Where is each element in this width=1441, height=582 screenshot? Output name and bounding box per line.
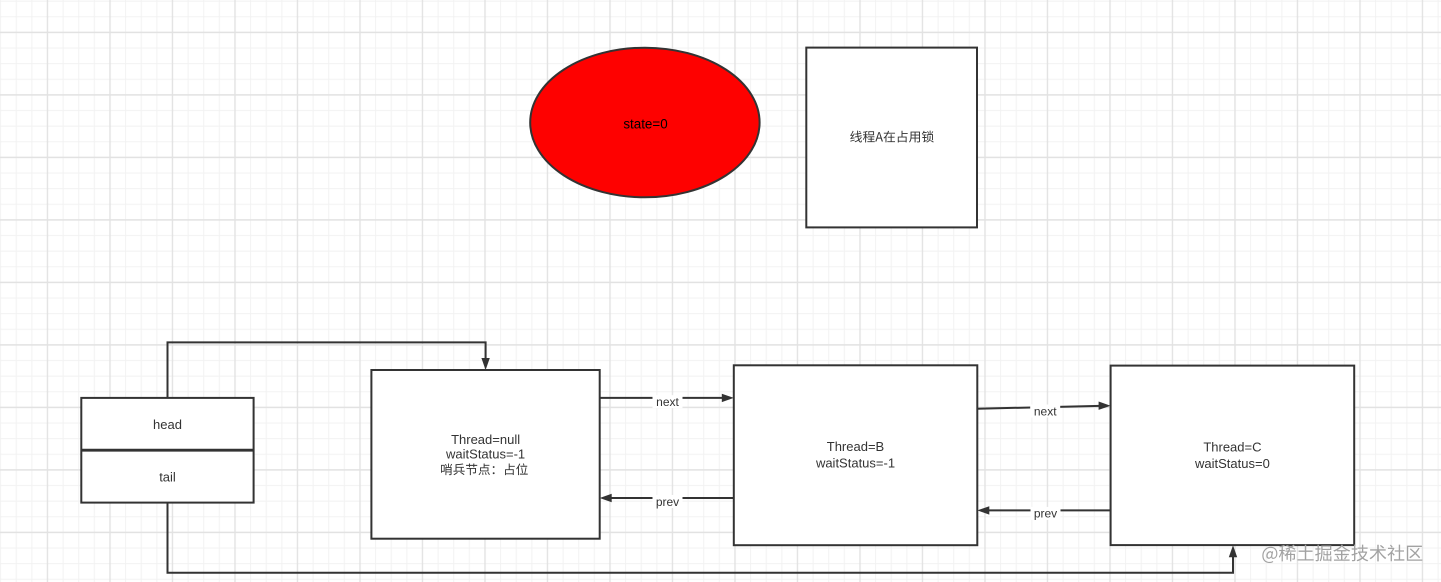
svg-text:next: next [656, 395, 679, 409]
svg-text:next: next [1034, 404, 1057, 418]
svg-text:state=0: state=0 [623, 117, 667, 132]
svg-text:Thread=null: Thread=null [451, 432, 520, 447]
svg-text:Thread=C: Thread=C [1203, 440, 1261, 455]
svg-text:Thread=B: Thread=B [827, 439, 884, 454]
svg-text:tail: tail [159, 470, 176, 485]
svg-text:waitStatus=-1: waitStatus=-1 [815, 456, 895, 471]
svg-text:prev: prev [656, 495, 679, 509]
svg-text:waitStatus=0: waitStatus=0 [1194, 456, 1270, 471]
svg-text:waitStatus=-1: waitStatus=-1 [445, 447, 525, 462]
svg-text:prev: prev [1034, 507, 1057, 521]
svg-text:head: head [153, 417, 182, 432]
